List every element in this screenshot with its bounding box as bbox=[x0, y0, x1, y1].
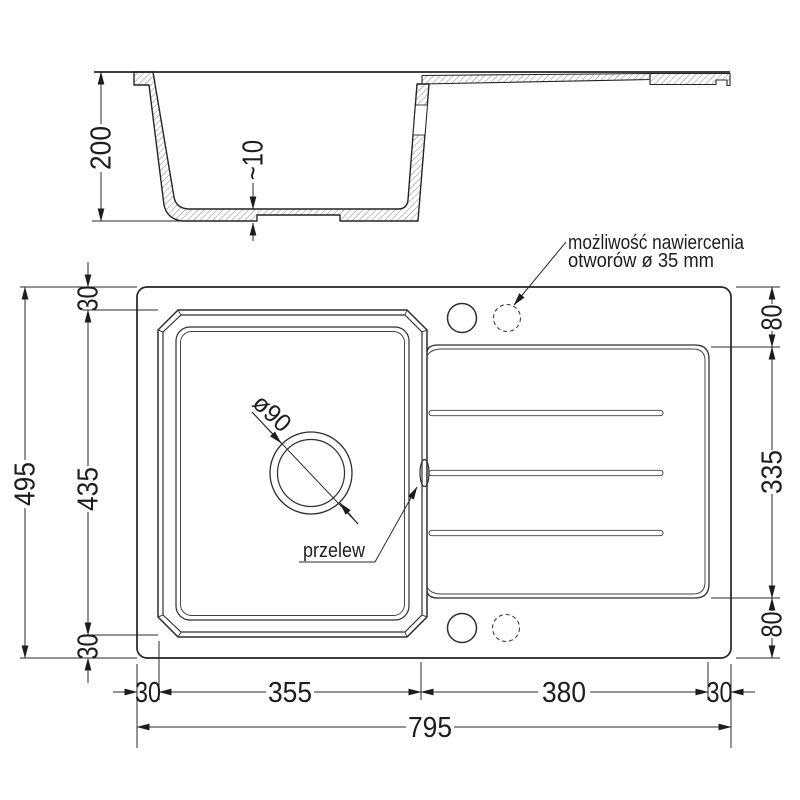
dim-drainer-width: 380 bbox=[421, 677, 708, 709]
dim-deck-bottom-label: 80 bbox=[757, 612, 789, 638]
bowl-rim-chamfer-edges bbox=[158, 310, 427, 637]
bowl-rim-inner bbox=[163, 315, 422, 632]
dim-depth-label: 200 bbox=[86, 126, 118, 170]
drainer-outline-inner bbox=[427, 349, 705, 594]
dim-rim-left-label: 30 bbox=[135, 677, 161, 709]
sink-technical-drawing: 200 ~10 ø90 bbox=[0, 0, 800, 800]
dim-deck-top-label: 80 bbox=[757, 305, 789, 331]
tap-hole-bottom bbox=[448, 614, 477, 643]
dim-rim-bottom: 30 bbox=[73, 634, 105, 684]
dim-bottom-thickness: ~10 bbox=[238, 140, 270, 241]
basin-section bbox=[134, 72, 429, 221]
dim-rim-right: 30 bbox=[707, 677, 756, 709]
dim-bowl-opening-height-label: 435 bbox=[73, 467, 105, 511]
dim-deck-bottom: 80 bbox=[757, 598, 789, 658]
drainer-groove bbox=[429, 530, 663, 535]
optional-tap-hole-top bbox=[494, 305, 521, 332]
dim-bowl-opening-width-label: 355 bbox=[268, 677, 312, 709]
dim-rim-top-label: 30 bbox=[73, 286, 105, 312]
dim-drain-diameter-label: ø90 bbox=[247, 389, 297, 438]
overflow-callout: przelew bbox=[299, 487, 417, 562]
tap-hole-top bbox=[448, 304, 477, 333]
side-section-view: 200 ~10 bbox=[86, 72, 731, 241]
overflow-label: przelew bbox=[303, 540, 365, 562]
drain-hole: ø90 bbox=[247, 389, 358, 524]
dim-total-height-label: 495 bbox=[10, 462, 42, 506]
dims-right: 80 335 80 bbox=[711, 287, 789, 658]
dim-total-width: 795 bbox=[137, 712, 731, 744]
dim-drainer-height: 335 bbox=[757, 347, 789, 598]
dim-rim-left: 30 bbox=[113, 677, 161, 709]
bowl-floor-outer bbox=[176, 327, 409, 620]
dim-deck-top: 80 bbox=[757, 287, 789, 347]
drainer-groove bbox=[429, 470, 663, 475]
technical-drawing-page: 200 ~10 ø90 bbox=[0, 0, 800, 800]
dim-drainer-height-label: 335 bbox=[757, 450, 789, 494]
dims-bottom: 30 355 380 30 795 bbox=[113, 641, 755, 748]
drainer-edge-section bbox=[650, 74, 730, 86]
dim-bowl-opening-width: 355 bbox=[159, 677, 421, 709]
bowl-rim-outer bbox=[158, 310, 427, 637]
drill-note-callout: możliwość nawiercenia otworów ø 35 mm bbox=[514, 232, 745, 305]
dim-rim-bottom-label: 30 bbox=[73, 634, 105, 660]
drainer-board bbox=[427, 345, 709, 598]
dim-total-height: 495 bbox=[10, 287, 42, 658]
dim-bottom-thickness-label: ~10 bbox=[238, 140, 270, 180]
drainer-plate-section bbox=[422, 74, 650, 85]
bowl-floor-inner bbox=[181, 332, 405, 616]
optional-tap-hole-bottom bbox=[493, 615, 520, 642]
dims-left: 495 30 435 30 bbox=[10, 262, 159, 683]
sink-outer-edge bbox=[137, 287, 731, 658]
dim-rim-right-label: 30 bbox=[707, 677, 733, 709]
dim-total-width-label: 795 bbox=[408, 712, 452, 744]
drainer-outline-outer bbox=[427, 345, 709, 598]
drainer-groove bbox=[429, 410, 663, 415]
dim-rim-top: 30 bbox=[73, 262, 105, 312]
top-plan-view: ø90 przelew możliwość nawiercenia otworó… bbox=[137, 232, 745, 658]
drill-note-line2: otworów ø 35 mm bbox=[568, 250, 714, 272]
dim-bowl-opening-height: 435 bbox=[73, 310, 105, 635]
dim-drainer-width-label: 380 bbox=[542, 677, 586, 709]
